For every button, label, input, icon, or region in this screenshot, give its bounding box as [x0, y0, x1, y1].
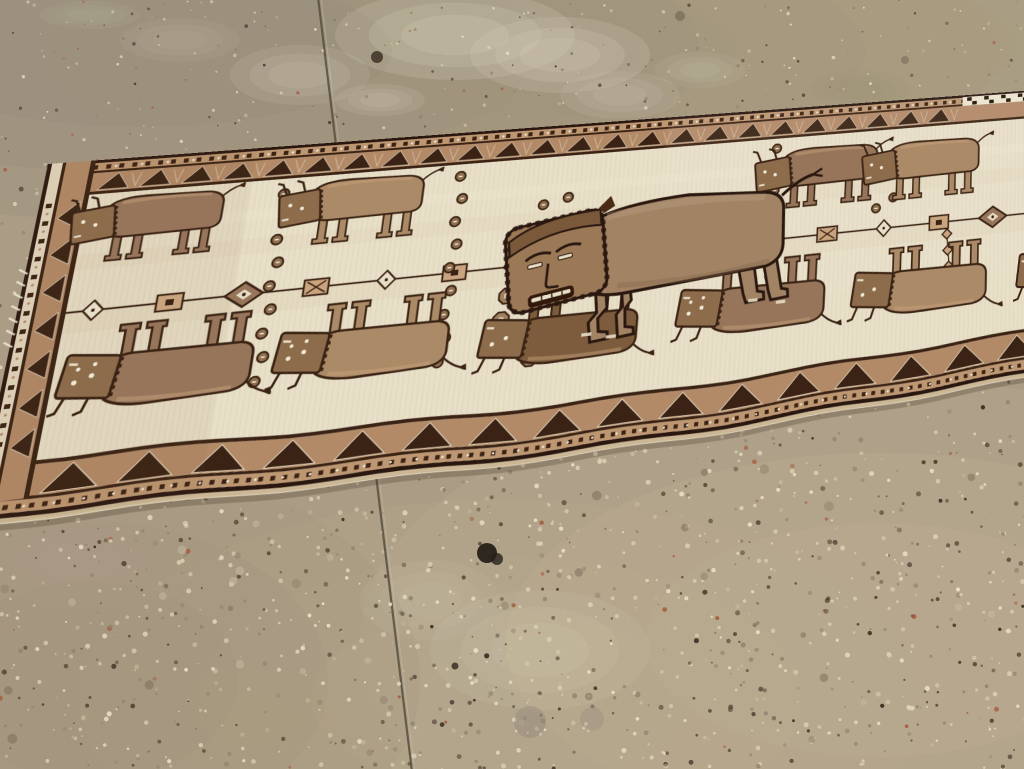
photo-scene — [0, 0, 1024, 769]
floor-stain — [890, 14, 1024, 66]
floor-stain — [360, 560, 500, 640]
floor-spot — [675, 11, 685, 21]
dot-motif — [872, 204, 881, 214]
floor-stain — [130, 670, 370, 769]
floor-stain — [335, 84, 425, 116]
floor-stain — [40, 1, 140, 29]
floor-stain — [120, 18, 240, 62]
floor-stain — [655, 52, 745, 88]
floor-spot — [491, 553, 503, 565]
diamond-chain-motif — [302, 278, 329, 296]
floor-spot — [901, 56, 909, 64]
diamond-chain-motif — [929, 215, 948, 231]
diamond-chain-motif — [155, 293, 184, 312]
floor-spot — [514, 706, 546, 738]
floor-spot — [371, 51, 383, 63]
floor-spot — [452, 663, 459, 670]
diamond-chain-motif — [817, 226, 838, 242]
floor-spot — [580, 707, 604, 731]
